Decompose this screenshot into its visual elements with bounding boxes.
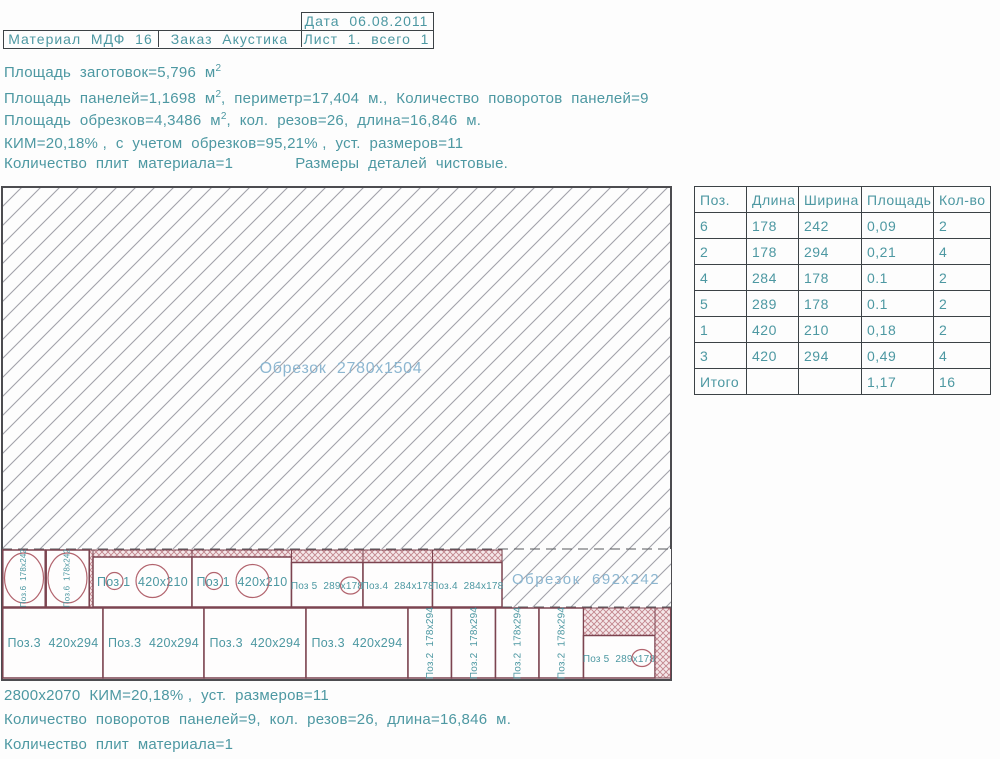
svg-text:Поз 5 289х178: Поз 5 289х178 bbox=[583, 654, 656, 665]
svg-text:Поз.1 420х210: Поз.1 420х210 bbox=[97, 575, 188, 589]
svg-text:Поз.2 178х294: Поз.2 178х294 bbox=[469, 607, 480, 680]
svg-text:Поз.6 178х242: Поз.6 178х242 bbox=[19, 548, 28, 607]
svg-text:Поз.6 178х242: Поз.6 178х242 bbox=[63, 548, 72, 607]
svg-text:Обрезок 692х242: Обрезок 692х242 bbox=[512, 571, 660, 588]
svg-text:Поз.3 420х294: Поз.3 420х294 bbox=[311, 636, 402, 650]
svg-text:Поз.1 420х210: Поз.1 420х210 bbox=[196, 575, 287, 589]
svg-text:Поз.2 178х294: Поз.2 178х294 bbox=[557, 607, 568, 680]
svg-text:Поз.3 420х294: Поз.3 420х294 bbox=[108, 636, 199, 650]
svg-text:Обрезок 2780х1504: Обрезок 2780х1504 bbox=[260, 360, 423, 377]
svg-text:Поз 5 289х178: Поз 5 289х178 bbox=[291, 581, 364, 592]
svg-text:Поз.2 178х294: Поз.2 178х294 bbox=[425, 607, 436, 680]
svg-text:Поз.4 284х178: Поз.4 284х178 bbox=[431, 581, 504, 592]
svg-text:Поз.3 420х294: Поз.3 420х294 bbox=[7, 636, 98, 650]
svg-text:Поз.4 284х178: Поз.4 284х178 bbox=[362, 581, 435, 592]
svg-text:Поз.3 420х294: Поз.3 420х294 bbox=[209, 636, 300, 650]
svg-text:Поз.2 178х294: Поз.2 178х294 bbox=[513, 607, 524, 680]
